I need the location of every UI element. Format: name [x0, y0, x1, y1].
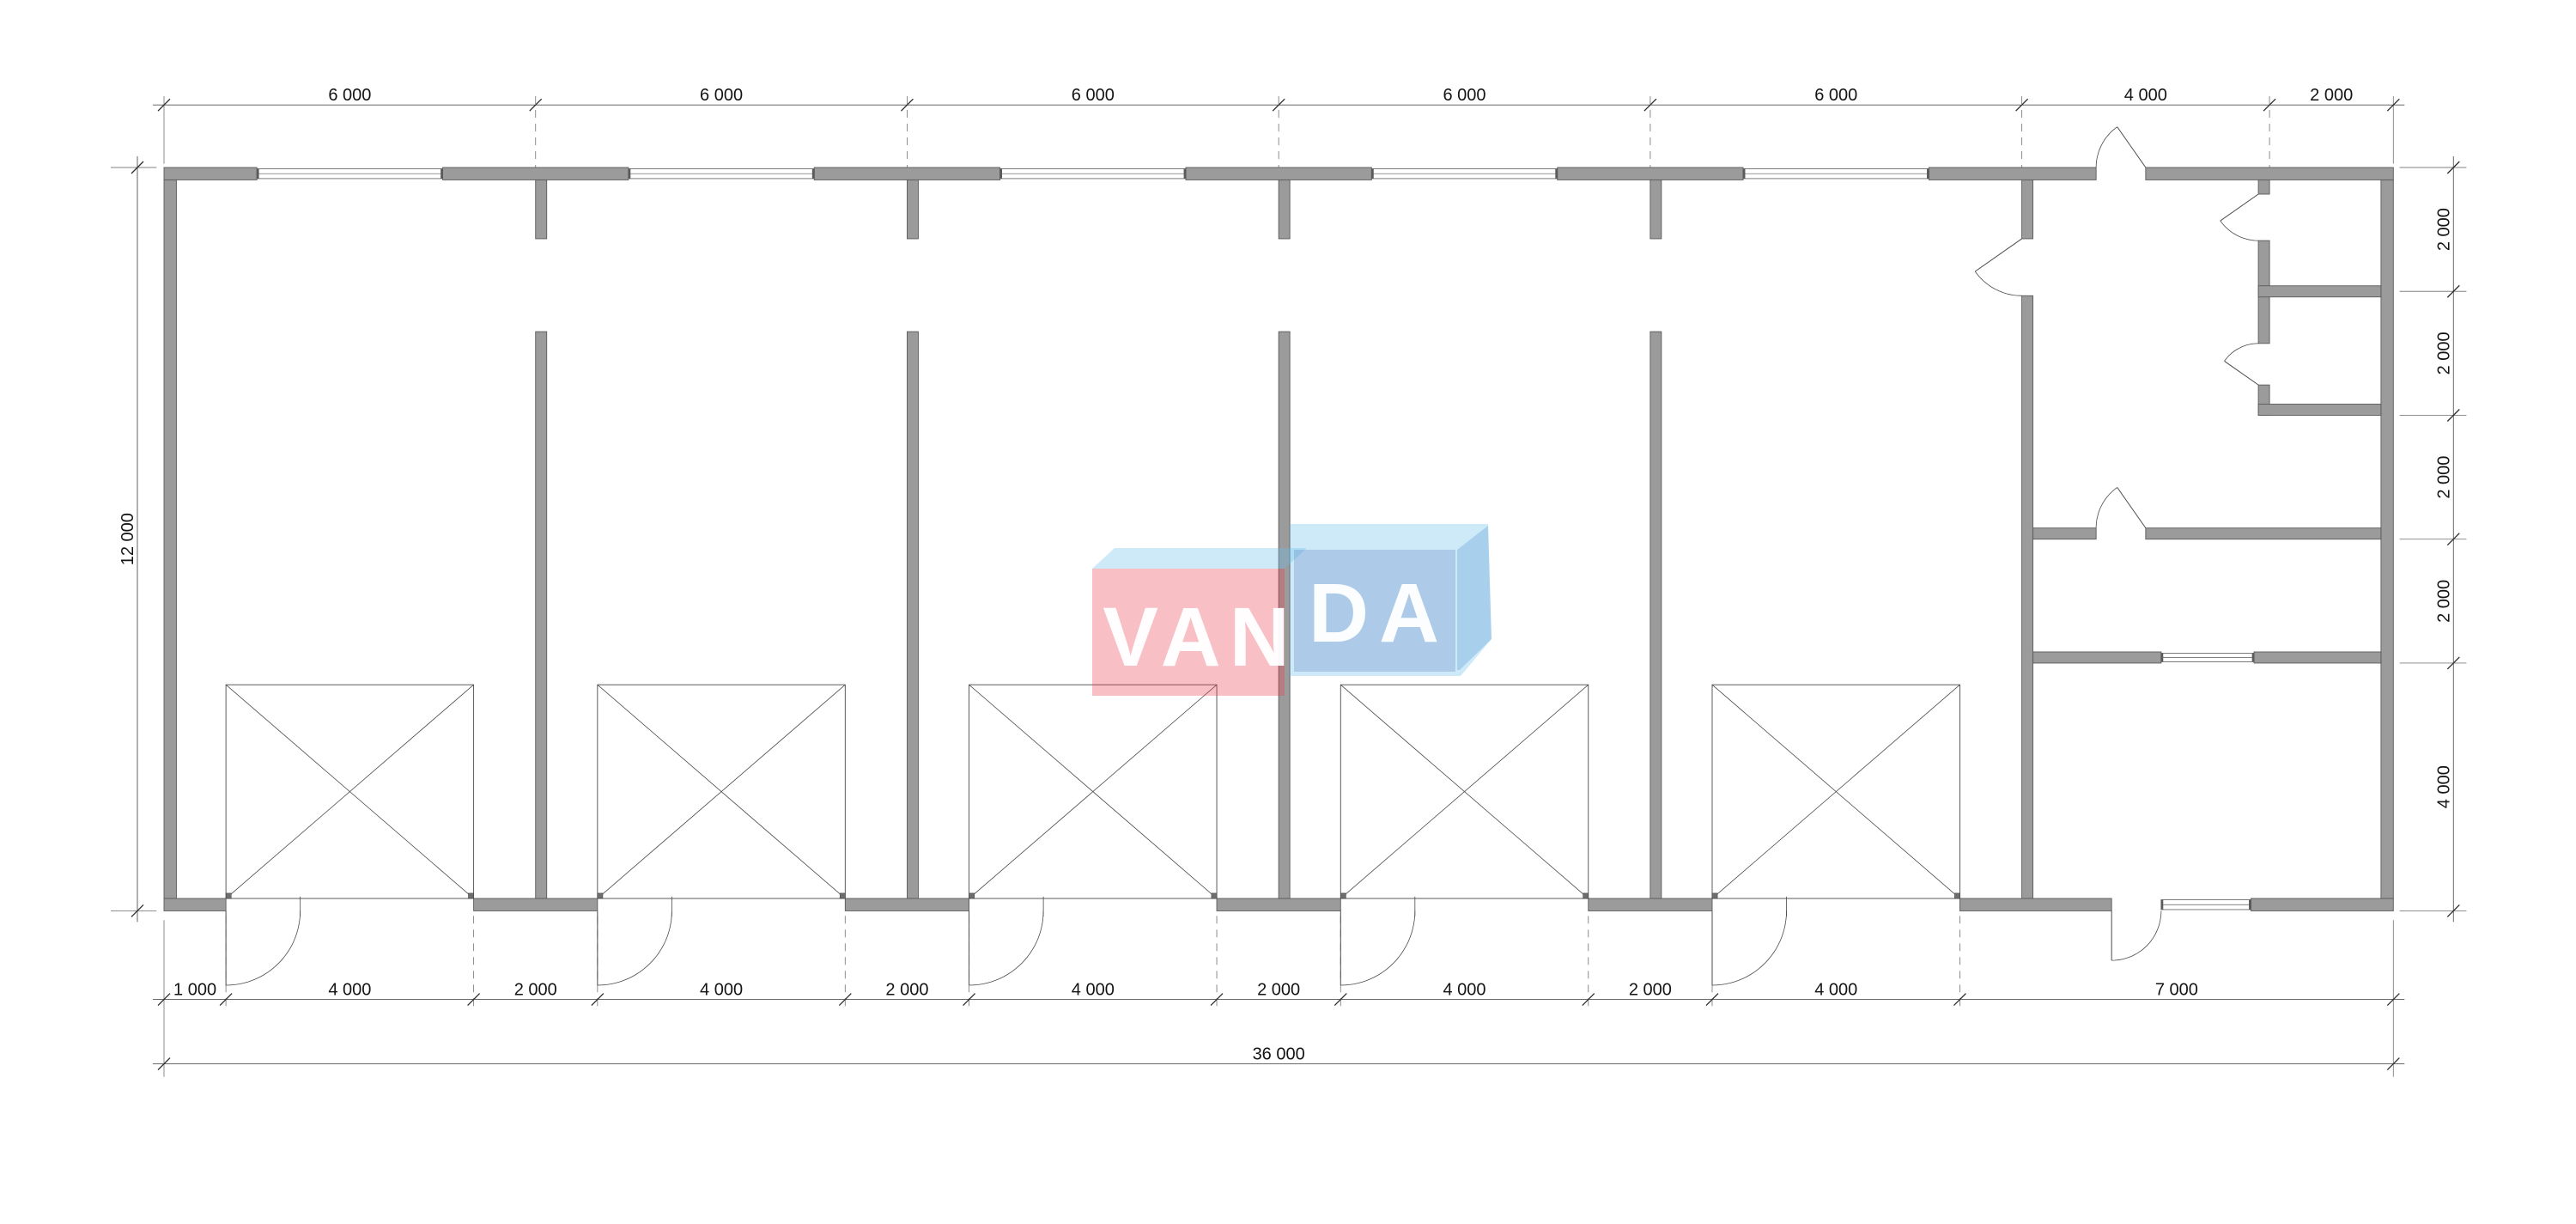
dimension-label: 2 000: [514, 981, 557, 1000]
window-end-cap: [2249, 900, 2251, 910]
wall-segment: [1186, 167, 1371, 180]
window-end-cap: [2161, 653, 2163, 661]
door-jamb-block: [1583, 893, 1589, 898]
dimension-label: 4 000: [1072, 981, 1115, 1000]
logo-text-da: DA: [1309, 566, 1449, 660]
wall-segment: [1589, 898, 1712, 910]
dimension-label: 2 000: [2310, 86, 2353, 105]
door-jamb-block: [1712, 893, 1717, 898]
wall-segment: [2022, 180, 2033, 239]
dimension-label: 6 000: [1443, 86, 1485, 105]
door-jamb-block: [226, 893, 231, 898]
window: [1000, 169, 1186, 179]
wall-segment: [2033, 652, 2161, 663]
dimension-label: 2 000: [2434, 456, 2453, 499]
vanda-logo-watermark: VANDA: [1092, 524, 1492, 696]
wall-segment: [845, 898, 969, 910]
window: [1743, 169, 1929, 179]
logo-text-van: VAN: [1103, 590, 1298, 684]
wall-segment: [1217, 898, 1340, 910]
wall-segment: [2146, 167, 2393, 180]
logo-red-slab-top-face: [1092, 548, 1307, 569]
wall-segment: [443, 167, 629, 180]
floor-plan-page: 6 0006 0006 0006 0006 0004 0002 0001 000…: [0, 0, 2576, 1224]
wall-segment: [2254, 652, 2381, 663]
window-end-cap: [2252, 653, 2254, 661]
wall-segment: [164, 180, 176, 898]
window-end-cap: [1184, 169, 1186, 179]
wall-segment: [1650, 180, 1662, 239]
window: [629, 169, 814, 179]
dimension-label: 6 000: [1814, 86, 1857, 105]
wall-segment: [1558, 167, 1743, 180]
window-end-cap: [440, 169, 442, 179]
wall-segment: [1650, 332, 1662, 898]
window-end-cap: [2161, 900, 2163, 910]
door-jamb-block: [468, 893, 473, 898]
wall-segment: [814, 167, 999, 180]
wall-segment: [2258, 404, 2381, 415]
dimension-label: 6 000: [1072, 86, 1115, 105]
dimension-label: 7 000: [2155, 981, 2198, 1000]
dimension-label: 2 000: [885, 981, 928, 1000]
door-jamb-block: [598, 893, 603, 898]
dimension-label: 12 000: [118, 513, 137, 565]
wall-segment: [2258, 180, 2269, 194]
dimension-label: 6 000: [700, 86, 743, 105]
window-end-cap: [1743, 169, 1745, 179]
window-end-cap: [1000, 169, 1002, 179]
door-jamb-block: [1954, 893, 1959, 898]
door-jamb-block: [1212, 893, 1217, 898]
floor-plan-drawing: 6 0006 0006 0006 0006 0004 0002 0001 000…: [0, 0, 2576, 1224]
wall-segment: [536, 180, 547, 239]
dimension-label: 4 000: [2124, 86, 2167, 105]
wall-segment: [907, 180, 918, 239]
wall-segment: [2258, 286, 2381, 297]
dimension-label: 4 000: [1443, 981, 1485, 1000]
dimension-label: 2 000: [1257, 981, 1300, 1000]
door-jamb-block: [1340, 893, 1346, 898]
wall-segment: [2022, 295, 2033, 898]
wall-segment: [907, 332, 918, 898]
wall-segment: [2251, 898, 2393, 910]
window-end-cap: [1927, 169, 1929, 179]
wall-segment: [1929, 167, 2096, 180]
wall-segment: [1959, 898, 2111, 910]
window-end-cap: [812, 169, 814, 179]
door-jamb-block: [969, 893, 975, 898]
dimension-label: 2 000: [2434, 208, 2453, 251]
wall-segment: [2033, 528, 2097, 539]
dimension-label: 6 000: [328, 86, 371, 105]
window: [1371, 169, 1557, 179]
wall-segment: [474, 898, 598, 910]
wall-segment: [2381, 180, 2393, 898]
window-end-cap: [629, 169, 630, 179]
dimension-label: 1 000: [173, 981, 216, 1000]
dimension-label: 36 000: [1253, 1045, 1305, 1064]
wall-segment: [164, 898, 226, 910]
window: [2161, 653, 2254, 661]
window-end-cap: [1371, 169, 1373, 179]
wall-segment: [1279, 180, 1290, 239]
dimension-label: 4 000: [328, 981, 371, 1000]
dimension-label: 2 000: [1629, 981, 1672, 1000]
wall-segment: [2146, 528, 2381, 539]
door-jamb-block: [840, 893, 845, 898]
window-end-cap: [257, 169, 258, 179]
dimension-label: 4 000: [2434, 765, 2453, 808]
wall-segment: [536, 332, 547, 898]
dimension-label: 4 000: [700, 981, 743, 1000]
dimension-label: 4 000: [1814, 981, 1857, 1000]
window-end-cap: [1555, 169, 1557, 179]
dimension-label: 2 000: [2434, 580, 2453, 623]
wall-segment: [164, 167, 257, 180]
dimension-label: 2 000: [2434, 332, 2453, 375]
window: [2161, 900, 2251, 910]
window: [257, 169, 442, 179]
